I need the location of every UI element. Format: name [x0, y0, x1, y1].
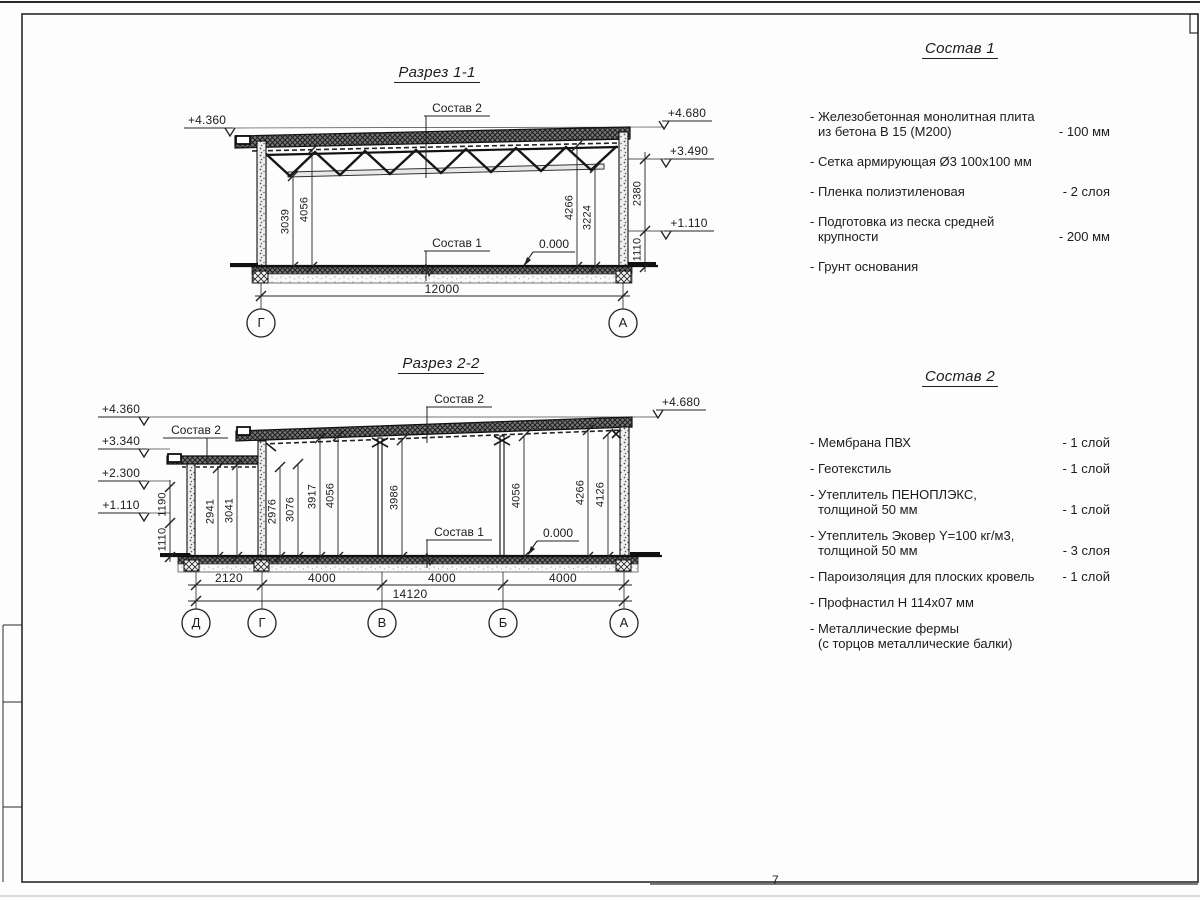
material-text: - Мембрана ПВХ — [810, 435, 911, 450]
material-item: - Грунт основания — [810, 259, 1110, 274]
sostav2-panel-title-wrap: Состав 2 — [810, 368, 1110, 387]
sostav2-leader-label: Состав 2 — [426, 392, 492, 406]
elevation-mark: +4.360 — [96, 402, 146, 416]
dimension-label: 4056 — [324, 476, 337, 516]
dimension-label: 3224 — [581, 198, 594, 238]
section2-title-wrap: Разрез 2-2 — [381, 355, 501, 374]
section1-title: Разрез 1-1 — [394, 64, 479, 83]
material-value: - 2 слоя — [1057, 184, 1110, 199]
sostav1-panel-title: Состав 1 — [922, 40, 998, 59]
dimension-label: 4126 — [594, 475, 607, 515]
dimension-label: 1190 — [156, 485, 169, 525]
axis-letter: Д — [182, 615, 210, 630]
sostav2-items: - Мембрана ПВХ - 1 слой - Геотекстиль - … — [810, 435, 1110, 651]
material-value: - 1 слой — [1056, 461, 1110, 476]
material-text: крупности — [810, 229, 994, 244]
dimension-label: 4000 — [417, 571, 467, 585]
axis-letter: Г — [248, 615, 276, 630]
material-item: - Железобетонная монолитная плитаиз бето… — [810, 109, 1110, 139]
drawing-sheet: Разрез 1-1 Состав 2 Состав 1 0.000 +4.36… — [0, 0, 1200, 900]
zero-level-label: 0.000 — [532, 237, 576, 251]
material-text: - Геотекстиль — [810, 461, 891, 476]
material-value: - 200 мм — [1053, 229, 1110, 244]
material-text: - Пленка полиэтиленовая — [810, 184, 965, 199]
material-text: - Пароизоляция для плоских кровель — [810, 569, 1034, 584]
dimension-label: 14120 — [385, 587, 435, 601]
material-item: - Мембрана ПВХ - 1 слой — [810, 435, 1110, 450]
elevation-mark: +4.360 — [182, 113, 232, 127]
dimension-label: 4000 — [297, 571, 347, 585]
material-text: - Сетка армирующая Ø3 100х100 мм — [810, 154, 1032, 169]
sostav2-panel-title: Состав 2 — [922, 368, 998, 387]
elevation-mark: +1.110 — [664, 216, 714, 230]
dimension-label: 3041 — [223, 491, 236, 531]
material-item: - Пароизоляция для плоских кровель - 1 с… — [810, 569, 1110, 584]
dimension-label: 4266 — [574, 473, 587, 513]
zero-level-label: 0.000 — [536, 526, 580, 540]
material-text: - Подготовка из песка средней — [810, 214, 994, 229]
material-text: - Металлические фермы — [810, 621, 1013, 636]
material-text: (с торцов металлические балки) — [810, 636, 1013, 651]
elevation-mark: +2.300 — [96, 466, 146, 480]
section2-title: Разрез 2-2 — [398, 355, 483, 374]
elevation-mark: +4.680 — [662, 106, 712, 120]
material-text: толщиной 50 мм — [810, 502, 977, 517]
sostav2-panel: Состав 2 - Мембрана ПВХ - 1 слой - Геоте… — [810, 368, 1110, 662]
sostav1-items: - Железобетонная монолитная плитаиз бето… — [810, 109, 1110, 274]
dimension-label: 3917 — [306, 477, 319, 517]
sostav2-leader-label: Состав 2 — [424, 101, 490, 115]
material-item: - Металлические фермы(с торцов металличе… — [810, 621, 1110, 651]
material-item: - Сетка армирующая Ø3 100х100 мм — [810, 154, 1110, 169]
elevation-mark: +3.490 — [664, 144, 714, 158]
dimension-label: 3986 — [388, 478, 401, 518]
sostav1-leader-label: Состав 1 — [426, 525, 492, 539]
axis-letter: Г — [247, 315, 275, 330]
sostav1-leader-label: Состав 1 — [424, 236, 490, 250]
dimension-label: 2941 — [204, 492, 217, 532]
dimension-label: 12000 — [417, 282, 467, 296]
material-text: - Грунт основания — [810, 259, 918, 274]
elevation-mark: +1.110 — [96, 498, 146, 512]
material-item: - Пленка полиэтиленовая - 2 слоя — [810, 184, 1110, 199]
material-text: - Железобетонная монолитная плита — [810, 109, 1035, 124]
material-value: - 100 мм — [1053, 124, 1110, 139]
material-value: - 1 слой — [1056, 502, 1110, 517]
sostav1-panel: Состав 1 - Железобетонная монолитная пли… — [810, 40, 1110, 289]
sostav1-panel-title-wrap: Состав 1 — [810, 40, 1110, 59]
axis-letter: В — [368, 615, 396, 630]
page-number: 7 — [772, 873, 779, 887]
material-item: - Профнастил Н 114х07 мм — [810, 595, 1110, 610]
axis-letter: А — [610, 615, 638, 630]
elevation-mark: +4.680 — [656, 395, 706, 409]
dimension-label: 4266 — [563, 188, 576, 228]
dimension-label: 4056 — [298, 190, 311, 230]
dimension-label: 4000 — [538, 571, 588, 585]
material-text: - Утеплитель Эковер Y=100 кг/м3, — [810, 528, 1014, 543]
axis-letter: Б — [489, 615, 517, 630]
material-item: - Подготовка из песка среднейкрупности -… — [810, 214, 1110, 244]
dimension-label: 3039 — [279, 202, 292, 242]
material-value: - 3 слоя — [1057, 543, 1110, 558]
dimension-label: 2976 — [266, 492, 279, 532]
section1-title-wrap: Разрез 1-1 — [377, 64, 497, 83]
material-text: - Профнастил Н 114х07 мм — [810, 595, 974, 610]
axis-letter: А — [609, 315, 637, 330]
material-item: - Утеплитель ПЕНОПЛЭКС,толщиной 50 мм - … — [810, 487, 1110, 517]
material-text: - Утеплитель ПЕНОПЛЭКС, — [810, 487, 977, 502]
material-item: - Утеплитель Эковер Y=100 кг/м3,толщиной… — [810, 528, 1110, 558]
material-value: - 1 слой — [1056, 569, 1110, 584]
dimension-label: 2120 — [204, 571, 254, 585]
material-item: - Геотекстиль - 1 слой — [810, 461, 1110, 476]
material-text: толщиной 50 мм — [810, 543, 1014, 558]
material-text: из бетона В 15 (М200) — [810, 124, 1035, 139]
elevation-mark: +3.340 — [96, 434, 146, 448]
sostav2-leader-label: Состав 2 — [163, 423, 229, 437]
material-value: - 1 слой — [1056, 435, 1110, 450]
dimension-label: 1110 — [156, 520, 169, 560]
dimension-label: 1110 — [631, 230, 644, 270]
dimension-label: 4056 — [510, 476, 523, 516]
dimension-label: 2380 — [631, 174, 644, 214]
dimension-label: 3076 — [284, 490, 297, 530]
